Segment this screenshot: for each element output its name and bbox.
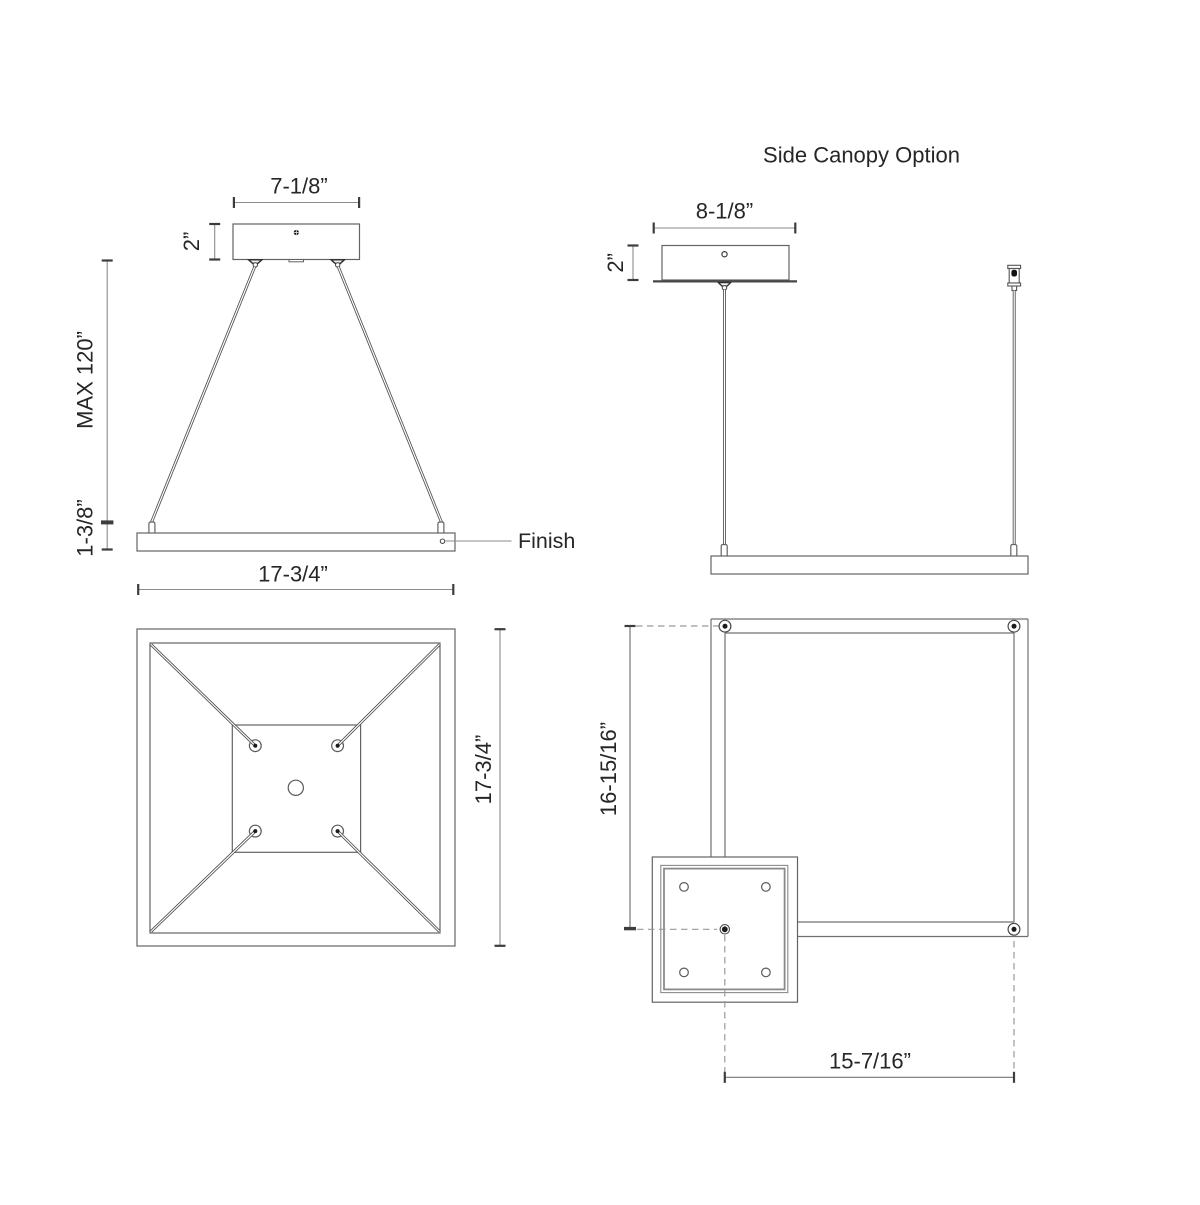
svg-text:2”: 2” [603, 253, 628, 273]
svg-text:7-1/8”: 7-1/8” [270, 174, 327, 199]
svg-text:2”: 2” [179, 232, 204, 252]
svg-text:MAX 120”: MAX 120” [73, 331, 98, 429]
svg-text:Finish: Finish [518, 529, 575, 553]
svg-text:1-3/8”: 1-3/8” [73, 499, 98, 556]
svg-text:8-1/8”: 8-1/8” [696, 199, 753, 224]
svg-text:17-3/4”: 17-3/4” [471, 735, 496, 805]
svg-text:16-15/16”: 16-15/16” [596, 722, 621, 816]
svg-text:Side Canopy Option: Side Canopy Option [763, 143, 960, 168]
svg-text:17-3/4”: 17-3/4” [258, 562, 328, 587]
svg-text:15-7/16”: 15-7/16” [829, 1049, 911, 1074]
